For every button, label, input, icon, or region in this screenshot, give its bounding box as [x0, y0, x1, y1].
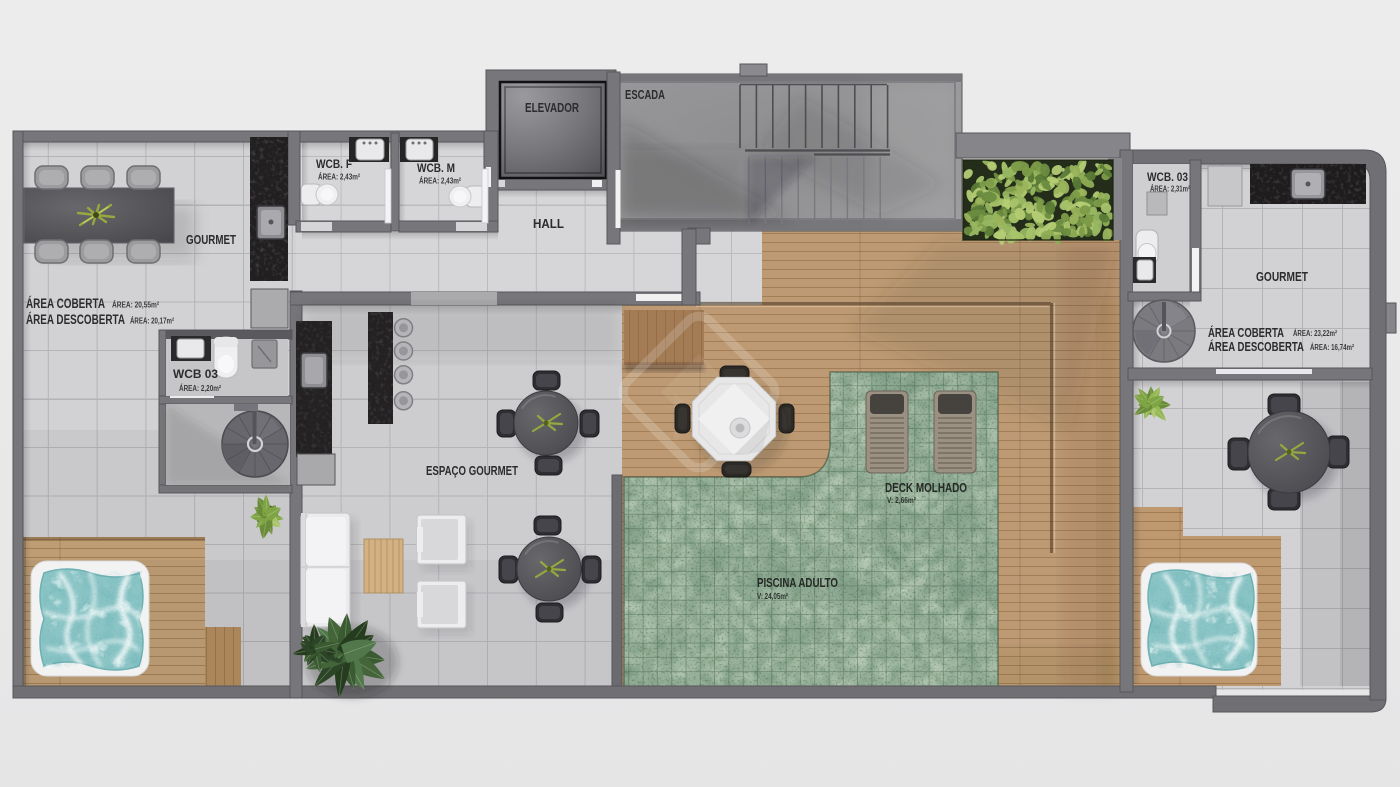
svg-text:WCB 03: WCB 03	[173, 367, 218, 381]
svg-text:V: 2,66m²: V: 2,66m²	[887, 496, 916, 505]
svg-text:V: 24,05m²: V: 24,05m²	[757, 592, 788, 601]
svg-text:ÁREA: 16,74m²: ÁREA: 16,74m²	[1310, 343, 1354, 352]
svg-text:GOURMET: GOURMET	[186, 232, 236, 247]
svg-text:ESPAÇO GOURMET: ESPAÇO GOURMET	[426, 464, 518, 478]
svg-text:ÁREA DESCOBERTA: ÁREA DESCOBERTA	[26, 312, 125, 327]
svg-text:ÁREA: 20,17m²: ÁREA: 20,17m²	[130, 316, 174, 326]
svg-text:ELEVADOR: ELEVADOR	[525, 101, 579, 115]
svg-text:GOURMET: GOURMET	[1256, 269, 1308, 284]
svg-text:ÁREA: 2,20m²: ÁREA: 2,20m²	[179, 384, 221, 393]
svg-text:ÁREA COBERTA: ÁREA COBERTA	[1208, 325, 1284, 340]
svg-text:ESCADA: ESCADA	[625, 88, 665, 102]
svg-text:HALL: HALL	[533, 216, 564, 231]
svg-text:ÁREA COBERTA: ÁREA COBERTA	[26, 296, 105, 311]
svg-text:ÁREA DESCOBERTA: ÁREA DESCOBERTA	[1208, 339, 1304, 354]
svg-text:DECK MOLHADO: DECK MOLHADO	[885, 481, 967, 495]
svg-text:ÁREA: 2,31m²: ÁREA: 2,31m²	[1150, 185, 1190, 194]
svg-text:ÁREA: 2,43m²: ÁREA: 2,43m²	[318, 172, 360, 182]
svg-text:WCB. 03: WCB. 03	[1147, 170, 1188, 184]
svg-text:ÁREA: 23,22m²: ÁREA: 23,22m²	[1293, 329, 1337, 338]
svg-text:ÁREA: 20,55m²: ÁREA: 20,55m²	[112, 300, 159, 310]
svg-text:WCB. F: WCB. F	[316, 157, 352, 171]
svg-text:ÁREA: 2,43m²: ÁREA: 2,43m²	[419, 176, 461, 186]
svg-text:PISCINA ADULTO: PISCINA ADULTO	[757, 576, 838, 590]
svg-text:WCB. M: WCB. M	[417, 161, 455, 175]
